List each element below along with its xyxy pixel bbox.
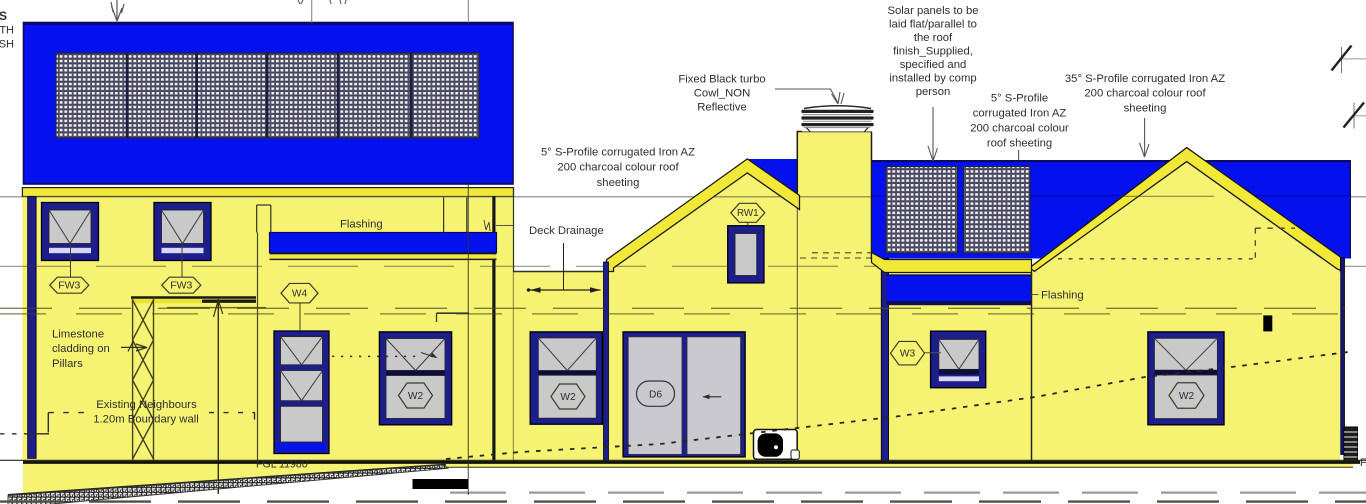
svg-text:Flashing: Flashing bbox=[1041, 290, 1084, 302]
svg-text:Limestone: Limestone bbox=[52, 328, 104, 340]
svg-text:5° S-Profile corrugated Iron A: 5° S-Profile corrugated Iron AZ bbox=[541, 146, 695, 158]
svg-text:person: person bbox=[916, 86, 951, 98]
svg-text:FW3: FW3 bbox=[58, 280, 80, 292]
svg-text:D6: D6 bbox=[649, 389, 662, 400]
svg-text:Cowl_NON: Cowl_NON bbox=[694, 88, 751, 100]
svg-text:Deck Drainage: Deck Drainage bbox=[529, 225, 604, 237]
svg-text:installed by comp: installed by comp bbox=[889, 73, 976, 85]
svg-text:FW3: FW3 bbox=[170, 280, 192, 292]
svg-text:W2: W2 bbox=[1179, 391, 1195, 402]
svg-text:Fixed Black turbo: Fixed Black turbo bbox=[678, 74, 765, 86]
svg-text:sheeting: sheeting bbox=[1124, 103, 1167, 115]
svg-text:W2: W2 bbox=[560, 392, 576, 403]
svg-text:corrugated Iron AZ: corrugated Iron AZ bbox=[973, 108, 1067, 120]
svg-text:cladding on: cladding on bbox=[52, 343, 110, 355]
svg-text:Flashing: Flashing bbox=[340, 219, 383, 231]
svg-text:W3: W3 bbox=[900, 349, 916, 360]
svg-text:200 charcoal colour: 200 charcoal colour bbox=[970, 123, 1069, 135]
svg-text:Solar panels to be: Solar panels to be bbox=[887, 5, 978, 17]
svg-text:W2: W2 bbox=[408, 391, 424, 402]
svg-text:laid flat/parallel to: laid flat/parallel to bbox=[889, 19, 977, 31]
svg-text:specified and: specified and bbox=[900, 59, 967, 71]
svg-text:Existing Neighbours: Existing Neighbours bbox=[96, 399, 197, 411]
svg-text:Pillars: Pillars bbox=[52, 358, 83, 370]
svg-text:S: S bbox=[0, 9, 7, 23]
svg-text:200 charcoal colour roof: 200 charcoal colour roof bbox=[557, 162, 679, 174]
svg-text:finish_Supplied,: finish_Supplied, bbox=[893, 46, 973, 58]
svg-text:sheeting: sheeting bbox=[597, 177, 640, 189]
svg-text:roof sheeting: roof sheeting bbox=[987, 138, 1052, 150]
svg-text:RW1: RW1 bbox=[737, 208, 759, 219]
svg-text:35° S-Profile corrugated Iron: 35° S-Profile corrugated Iron AZ bbox=[1065, 73, 1225, 85]
svg-text:5° S-Profile: 5° S-Profile bbox=[991, 93, 1048, 105]
svg-text:FG: FG bbox=[1360, 457, 1366, 469]
svg-text:Reflective: Reflective bbox=[697, 102, 747, 114]
svg-text:TH: TH bbox=[0, 25, 14, 37]
svg-text:the roof: the roof bbox=[914, 32, 953, 44]
svg-text:SH: SH bbox=[0, 39, 14, 51]
svg-text:1.20m Boundary wall: 1.20m Boundary wall bbox=[93, 414, 199, 426]
svg-text:200 charcoal colour roof: 200 charcoal colour roof bbox=[1084, 88, 1206, 100]
svg-text:W4: W4 bbox=[292, 289, 308, 300]
svg-text:FGL 11980: FGL 11980 bbox=[256, 459, 308, 471]
